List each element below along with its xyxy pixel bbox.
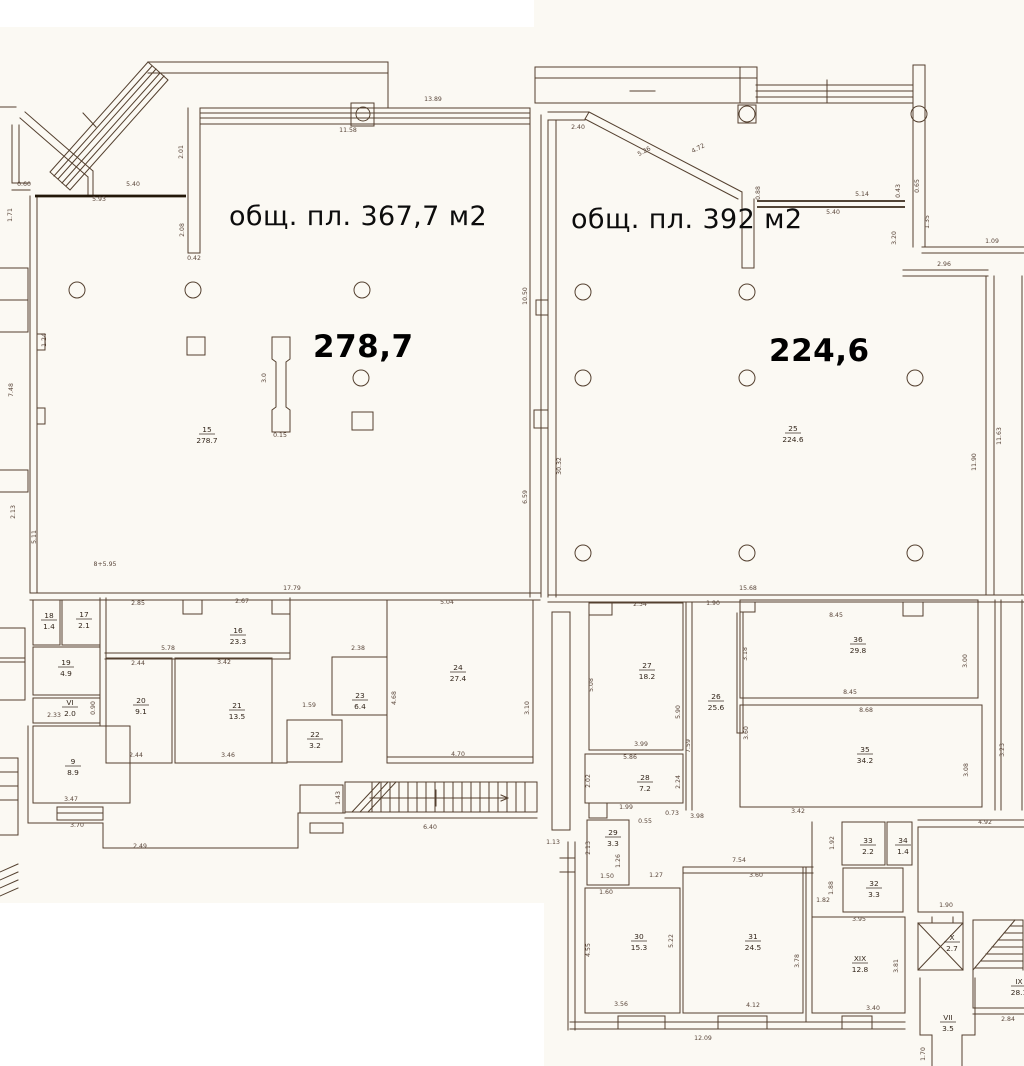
column-circle xyxy=(575,545,591,561)
unit-left-hall-area-value: 278,7 xyxy=(313,329,414,365)
dimension-label: 6.40 xyxy=(423,824,437,831)
svg-text:19: 19 xyxy=(61,658,71,667)
svg-text:26: 26 xyxy=(711,692,721,701)
dimension-label: 1.71 xyxy=(7,208,14,222)
room-outline xyxy=(552,612,570,830)
svg-text:VI: VI xyxy=(66,698,73,707)
room-label: 3015.3 xyxy=(631,932,648,952)
svg-text:35: 35 xyxy=(860,745,870,754)
svg-text:1.4: 1.4 xyxy=(43,622,55,631)
room-label: VII3.5 xyxy=(940,1013,956,1033)
svg-text:29: 29 xyxy=(608,828,618,837)
svg-text:IX: IX xyxy=(1015,977,1022,986)
dimension-label: 1.24 xyxy=(41,333,48,347)
svg-text:3.3: 3.3 xyxy=(607,839,619,848)
dimension-label: 2.38 xyxy=(351,645,365,652)
svg-text:15: 15 xyxy=(202,425,212,434)
column-circle xyxy=(907,370,923,386)
dimension-label: 3.81 xyxy=(893,959,900,973)
dimension-label: 8+5.95 xyxy=(94,561,117,568)
dimension-label: 2.49 xyxy=(133,843,147,850)
column-grid xyxy=(69,103,927,561)
wall-notch xyxy=(589,803,607,818)
room-label: 1623.3 xyxy=(230,626,247,646)
dimension-label: 4.55 xyxy=(585,943,592,957)
svg-text:278.7: 278.7 xyxy=(196,436,217,445)
room-label: IX28.1 xyxy=(1011,977,1024,997)
dimension-label: 3.10 xyxy=(524,701,531,715)
room-label: 3629.8 xyxy=(850,635,867,655)
dimension-label: 1.60 xyxy=(599,889,613,896)
dimension-label: 3.95 xyxy=(852,916,866,923)
svg-text:36: 36 xyxy=(853,635,863,644)
dimension-label: 1.90 xyxy=(706,600,720,607)
column-circle xyxy=(353,370,369,386)
dimension-label: 3.08 xyxy=(963,763,970,777)
left-edge-rooms xyxy=(0,268,28,896)
dimension-label: 5.78 xyxy=(161,645,175,652)
svg-text:2.7: 2.7 xyxy=(946,944,958,953)
dimension-label: 2.13 xyxy=(10,505,17,519)
dimension-label: 2.96 xyxy=(937,261,951,268)
dimension-label: 3.70 xyxy=(70,822,84,829)
dimension-label: 2.02 xyxy=(585,774,592,788)
dimension-label: 2.44 xyxy=(129,752,143,759)
room-label: 3534.2 xyxy=(857,745,873,765)
svg-text:13.5: 13.5 xyxy=(229,712,246,721)
dimension-label: 13.89 xyxy=(424,96,442,103)
dimension-label: 2.08 xyxy=(179,223,186,237)
dimension-label: 11.63 xyxy=(996,427,1003,445)
dimension-label: 1.50 xyxy=(600,873,614,880)
column-circle xyxy=(69,282,85,298)
column-circle xyxy=(575,284,591,300)
svg-text:4.9: 4.9 xyxy=(60,669,72,678)
svg-text:28.1: 28.1 xyxy=(1011,988,1024,997)
dimension-label: 4.70 xyxy=(451,751,465,758)
dimension-label: 0.90 xyxy=(90,701,97,715)
svg-text:28: 28 xyxy=(640,773,650,782)
svg-text:24.5: 24.5 xyxy=(745,943,762,952)
dimension-label: 5.22 xyxy=(668,934,675,948)
svg-text:24: 24 xyxy=(453,663,463,672)
room-label: 223.2 xyxy=(307,730,323,750)
dimension-label: 3.56 xyxy=(614,1001,628,1008)
svg-text:2.1: 2.1 xyxy=(78,621,90,630)
svg-text:18.2: 18.2 xyxy=(639,672,655,681)
room-label: 15278.7 xyxy=(196,425,217,445)
dimension-label: 2.24 xyxy=(675,775,682,789)
dimension-label: 10.50 xyxy=(522,287,529,305)
room-label: 194.9 xyxy=(58,658,74,678)
room-label: 209.1 xyxy=(133,696,149,716)
dimension-label: 8.45 xyxy=(843,689,857,696)
scan-margin xyxy=(0,0,534,27)
dimension-label: 1.90 xyxy=(939,902,953,909)
dimension-label: 0.88 xyxy=(755,186,762,200)
column-square xyxy=(352,412,373,430)
dimension-label: 3.78 xyxy=(794,954,801,968)
dimension-label: 5.14 xyxy=(855,191,869,198)
dimension-label: 11.58 xyxy=(339,127,357,134)
stairs-top-left xyxy=(0,62,388,196)
dimension-label: 2.54 xyxy=(633,601,647,608)
dimension-label: 0.73 xyxy=(665,810,679,817)
dimension-label: 6.59 xyxy=(522,490,529,504)
room-label: X2.7 xyxy=(944,933,960,953)
dimension-label: 2.44 xyxy=(131,660,145,667)
svg-text:27: 27 xyxy=(642,661,652,670)
dimension-label: 4.68 xyxy=(391,691,398,705)
dimension-label: 17.79 xyxy=(283,585,301,592)
dimension-label: 1.43 xyxy=(335,791,342,805)
svg-text:9.1: 9.1 xyxy=(135,707,147,716)
column-circle xyxy=(739,284,755,300)
dimension-label: 3.40 xyxy=(866,1005,880,1012)
svg-text:7.2: 7.2 xyxy=(639,784,651,793)
floorplan-scan-page: 15278.725224.6181.4172.11623.3194.9VI2.0… xyxy=(0,0,1024,1066)
dimension-label: 1.35 xyxy=(924,215,931,229)
dimension-label: 4.72 xyxy=(691,142,707,155)
svg-text:3.3: 3.3 xyxy=(868,890,880,899)
dimension-label: 2.01 xyxy=(178,145,185,159)
svg-text:12.8: 12.8 xyxy=(852,965,869,974)
wall-notch xyxy=(740,602,755,612)
dimension-label: 1.92 xyxy=(829,836,836,850)
svg-text:31: 31 xyxy=(748,932,758,941)
svg-text:15.3: 15.3 xyxy=(631,943,648,952)
dimension-label: 1.70 xyxy=(920,1047,927,1061)
room-label: 3124.5 xyxy=(745,932,762,952)
dimension-label: 3.47 xyxy=(64,796,78,803)
room-label: 341.4 xyxy=(895,836,911,856)
column-circle xyxy=(907,545,923,561)
column-pillar xyxy=(272,337,290,432)
svg-text:224.6: 224.6 xyxy=(782,435,803,444)
dimension-label: 2.33 xyxy=(47,712,61,719)
room-label: 323.3 xyxy=(866,879,882,899)
dimension-label: 7.48 xyxy=(8,383,15,397)
dimension-label: 1.88 xyxy=(828,881,835,895)
dimension-label: 5.86 xyxy=(623,754,637,761)
dimension-label: 8.45 xyxy=(829,612,843,619)
svg-text:27.4: 27.4 xyxy=(450,674,467,683)
room-label: 332.2 xyxy=(860,836,876,856)
column-circle xyxy=(739,106,755,122)
wall-pilaster xyxy=(536,300,548,315)
dimension-label: 5.93 xyxy=(92,196,106,203)
dimension-label: 0.43 xyxy=(895,184,902,198)
svg-text:22: 22 xyxy=(310,730,319,739)
room-outline xyxy=(589,603,683,750)
dimension-label: 5.11 xyxy=(31,530,38,544)
dimension-label: 3.46 xyxy=(221,752,235,759)
dimension-label: 3.18 xyxy=(742,647,749,661)
column-circle xyxy=(356,107,370,121)
svg-text:25: 25 xyxy=(788,424,798,433)
dimension-label: 1.09 xyxy=(985,238,999,245)
room-outline xyxy=(33,726,130,803)
svg-text:VII: VII xyxy=(943,1013,952,1022)
wall-notch xyxy=(272,600,290,614)
dimension-label: 0.65 xyxy=(914,179,921,193)
room-label: VI2.0 xyxy=(62,698,78,718)
column-circle xyxy=(185,282,201,298)
dimension-label: 4.92 xyxy=(978,819,992,826)
svg-text:23.3: 23.3 xyxy=(230,637,247,646)
svg-text:6.4: 6.4 xyxy=(354,702,366,711)
room-label: 181.4 xyxy=(41,611,57,631)
dimension-label: 1.26 xyxy=(615,854,622,868)
wall-notch xyxy=(183,600,202,614)
dimension-label: 5.40 xyxy=(126,181,140,188)
dimension-label: 15.68 xyxy=(739,585,757,592)
dimension-label: 3.42 xyxy=(791,808,805,815)
room-outline xyxy=(585,754,683,803)
column-square xyxy=(187,337,205,355)
svg-text:29.8: 29.8 xyxy=(850,646,867,655)
dimension-label: 3.98 xyxy=(690,813,704,820)
svg-text:XIX: XIX xyxy=(854,954,866,963)
room-label: XIX12.8 xyxy=(852,954,869,974)
dimension-label: 1.27 xyxy=(649,872,663,879)
dimension-label: 3.20 xyxy=(891,231,898,245)
scan-margin xyxy=(0,903,544,1066)
wall-notch xyxy=(589,603,612,615)
column-circle xyxy=(354,282,370,298)
svg-text:X: X xyxy=(949,933,954,942)
column-circle xyxy=(575,370,591,386)
column-square xyxy=(351,103,374,126)
unit-left-walls xyxy=(30,108,589,614)
dimension-label: 1.99 xyxy=(619,804,633,811)
svg-text:34: 34 xyxy=(898,836,908,845)
svg-text:18: 18 xyxy=(44,611,54,620)
room-label: 2427.4 xyxy=(450,663,467,683)
unit-right-hall-area-value: 224,6 xyxy=(769,333,870,369)
dimension-label: 12.09 xyxy=(694,1035,712,1042)
dimension-label: 2.40 xyxy=(571,124,585,131)
unit-right-total-area-label: общ. пл. 392 м2 xyxy=(571,204,803,235)
dimension-label: 5.04 xyxy=(440,599,454,606)
room-outline xyxy=(175,658,272,763)
dimension-label: 3.0 xyxy=(261,373,268,383)
dimension-label: 4.12 xyxy=(746,1002,760,1009)
dimension-label: 0.60 xyxy=(17,181,31,188)
unit-left-total-area-label: общ. пл. 367,7 м2 xyxy=(229,201,487,232)
svg-text:2.0: 2.0 xyxy=(64,709,76,718)
dimension-label: 3.23 xyxy=(999,743,1006,757)
dimension-label: 3.60 xyxy=(743,726,750,740)
room-label: 2625.6 xyxy=(708,692,725,712)
dimension-label: 11.90 xyxy=(971,453,978,471)
dimension-label: 5.40 xyxy=(826,209,840,216)
wall-notch xyxy=(903,602,923,616)
dimension-label: 1.82 xyxy=(816,897,830,904)
bottom-rooms-left xyxy=(28,598,537,848)
dimension-label: 2.85 xyxy=(131,600,145,607)
bottom-rooms-right xyxy=(552,600,1024,1066)
room-label: 287.2 xyxy=(637,773,653,793)
dimension-label: 2.67 xyxy=(235,598,249,605)
dimension-label: 2.13 xyxy=(585,841,592,855)
room-label: 293.3 xyxy=(605,828,621,848)
dimension-label: 3.60 xyxy=(749,872,763,879)
svg-text:30: 30 xyxy=(634,932,644,941)
wall-pilaster xyxy=(37,408,45,424)
dimension-label: 0.55 xyxy=(638,818,652,825)
dimension-label: 0.15 xyxy=(273,432,287,439)
svg-text:20: 20 xyxy=(136,696,146,705)
dimension-label: 5.08 xyxy=(588,678,595,692)
dimension-label: 3.42 xyxy=(217,659,231,666)
room-outline xyxy=(683,867,803,1013)
room-label: 172.1 xyxy=(76,610,92,630)
svg-text:16: 16 xyxy=(233,626,243,635)
dimension-label: 7.54 xyxy=(732,857,746,864)
room-label: 236.4 xyxy=(352,691,368,711)
svg-text:2.2: 2.2 xyxy=(862,847,874,856)
dimension-label: 1.13 xyxy=(546,839,560,846)
dimension-label: 3.00 xyxy=(962,654,969,668)
svg-text:32: 32 xyxy=(869,879,878,888)
dimension-label: 0.42 xyxy=(187,255,201,262)
room-outline xyxy=(310,823,343,833)
svg-text:25.6: 25.6 xyxy=(708,703,725,712)
dimension-label: 1.59 xyxy=(302,702,316,709)
dimension-label: 3.99 xyxy=(634,741,648,748)
dimension-label: 30.32 xyxy=(556,457,563,475)
svg-text:1.4: 1.4 xyxy=(897,847,909,856)
dimension-label: 2.84 xyxy=(1001,1016,1015,1023)
svg-text:33: 33 xyxy=(863,836,873,845)
dimension-label: 5.90 xyxy=(675,705,682,719)
svg-text:34.2: 34.2 xyxy=(857,756,873,765)
dimension-label: 8.68 xyxy=(859,707,873,714)
svg-text:3.5: 3.5 xyxy=(942,1024,954,1033)
svg-text:3.2: 3.2 xyxy=(309,741,321,750)
dimension-label: 7.59 xyxy=(685,739,692,753)
svg-text:8.9: 8.9 xyxy=(67,768,79,777)
svg-text:23: 23 xyxy=(355,691,365,700)
room-label: 2113.5 xyxy=(229,701,246,721)
room-label: 25224.6 xyxy=(782,424,803,444)
svg-text:21: 21 xyxy=(232,701,242,710)
column-circle xyxy=(739,545,755,561)
room-label: 2718.2 xyxy=(639,661,655,681)
room-label: 98.9 xyxy=(65,757,81,777)
column-circle xyxy=(739,370,755,386)
svg-text:17: 17 xyxy=(79,610,89,619)
svg-text:9: 9 xyxy=(71,757,76,766)
column-square xyxy=(738,105,756,123)
